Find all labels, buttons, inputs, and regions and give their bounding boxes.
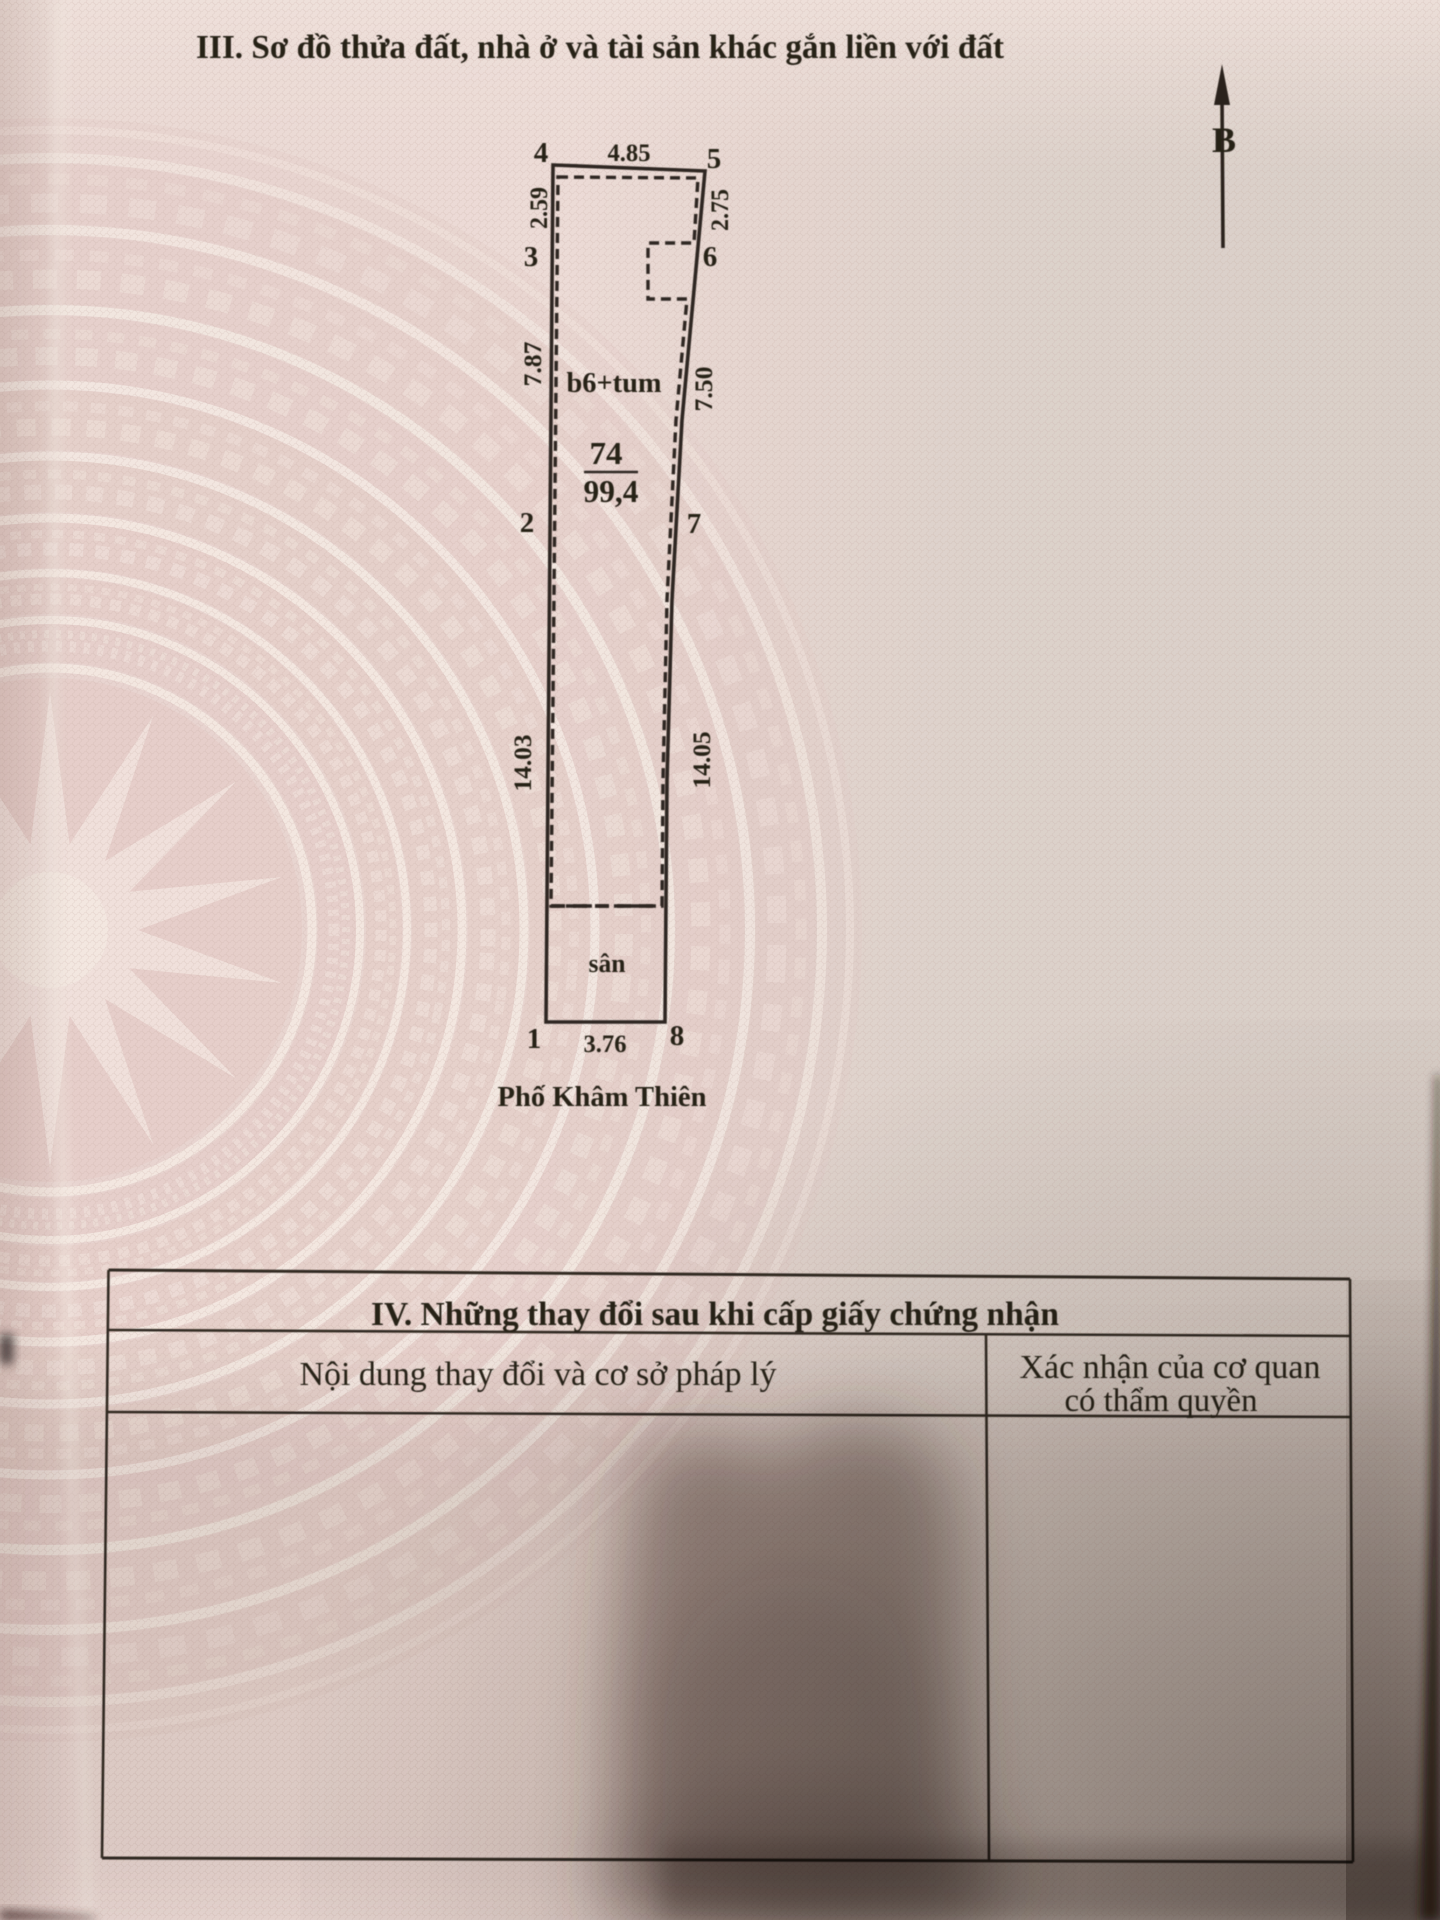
svg-text:7.50: 7.50 [691,367,718,412]
svg-text:sân: sân [589,949,627,978]
svg-text:2.75: 2.75 [707,189,734,231]
svg-text:14.03: 14.03 [510,735,537,792]
svg-text:b6+tum: b6+tum [567,368,662,399]
svg-text:4: 4 [534,137,549,169]
svg-text:5: 5 [707,143,722,175]
svg-text:6: 6 [703,241,718,273]
svg-text:99,4: 99,4 [584,473,639,509]
svg-text:3: 3 [524,241,539,273]
svg-text:7.87: 7.87 [520,342,547,387]
svg-text:14.05: 14.05 [689,732,716,789]
svg-text:2: 2 [520,507,535,539]
svg-text:4.85: 4.85 [608,140,651,167]
svg-text:7: 7 [687,508,702,540]
svg-text:III. Sơ đồ thửa đất, nhà ở và: III. Sơ đồ thửa đất, nhà ở và tài sản kh… [196,29,1005,66]
svg-text:B: B [1212,120,1236,160]
svg-text:74: 74 [590,435,623,471]
svg-text:2.59: 2.59 [526,187,553,229]
